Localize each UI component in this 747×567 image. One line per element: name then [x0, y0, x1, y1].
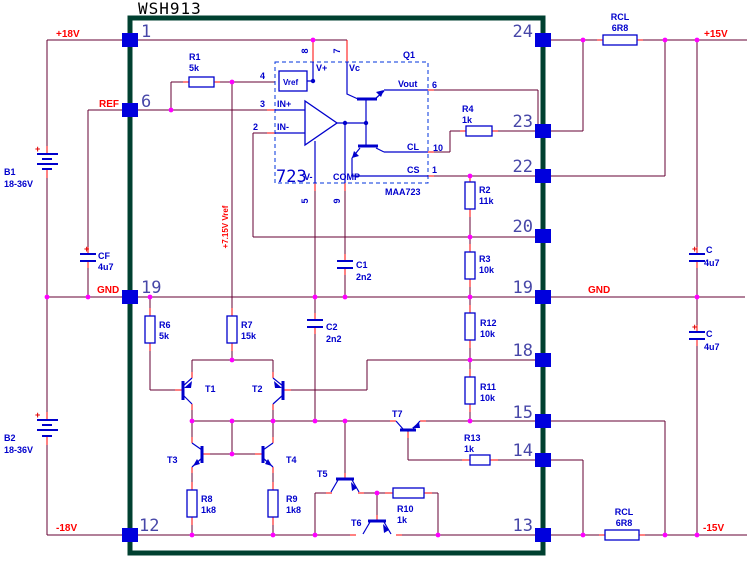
pin-23: 23 [513, 112, 533, 132]
ic-pin4: 4 [260, 71, 265, 81]
transistor-t3 [192, 443, 202, 467]
label-r8: R8 [201, 494, 213, 504]
resistor-r12 [465, 313, 475, 340]
label-r4: R4 [462, 104, 474, 114]
value-r12: 10k [480, 329, 496, 339]
value-r7: 15k [241, 331, 257, 341]
resistor-rcl-top [603, 35, 637, 45]
ic-pin7: 7 [332, 48, 342, 53]
pad-6 [122, 103, 138, 117]
ic-part-number: MAA723 [385, 187, 421, 197]
pad-15 [535, 414, 551, 428]
resistor-r3 [465, 252, 475, 279]
transistor-t5 [331, 479, 359, 492]
ic-pin6: 6 [432, 80, 437, 90]
pad-13 [535, 528, 551, 542]
label-t3: T3 [167, 455, 178, 465]
value-r10: 1k [397, 515, 408, 525]
pad-12 [122, 528, 138, 542]
ic-comp-label: COMP [333, 172, 360, 182]
resistor-r6 [145, 316, 155, 343]
battery-b2 [37, 420, 58, 436]
value-r1: 5k [189, 63, 200, 73]
transistor-t6 [363, 521, 391, 534]
battery-b1 [37, 154, 58, 169]
pin-20: 20 [513, 217, 533, 237]
label-r7: R7 [241, 320, 253, 330]
ic-pin3: 3 [260, 99, 265, 109]
value-r4: 1k [462, 115, 473, 125]
label-c2: C2 [326, 322, 338, 332]
label-r9: R9 [286, 494, 298, 504]
capacitor-cf [80, 254, 96, 261]
value-r8: 1k8 [201, 505, 216, 515]
label-r3: R3 [479, 254, 491, 264]
value-b2: 18-36V [4, 445, 33, 455]
value-rcl-bottom: 6R8 [616, 518, 633, 528]
rail-gnd-left: GND [97, 285, 119, 296]
transistor-t1 [183, 378, 192, 404]
resistor-r13 [470, 455, 490, 465]
plus-b1: + [35, 144, 40, 154]
ic-vc-label: Vc [349, 63, 360, 73]
value-r2: 11k [479, 196, 495, 206]
label-r1: R1 [189, 52, 201, 62]
resistor-r1 [189, 77, 214, 87]
label-r12: R12 [480, 318, 497, 328]
value-r9: 1k8 [286, 505, 301, 515]
resistor-rcl-bottom [605, 530, 639, 540]
plus-c-bottom: + [692, 322, 697, 332]
plus-c-top: + [692, 244, 697, 254]
label-r6: R6 [159, 320, 171, 330]
transistor-t7 [396, 421, 420, 430]
ic-vout-label: Vout [398, 79, 417, 89]
pad-22 [535, 169, 551, 183]
value-b1: 18-36V [4, 179, 33, 189]
q1-arrow [376, 90, 384, 97]
pin-19-right: 19 [513, 278, 533, 298]
plus-b2: + [35, 410, 40, 420]
resistor-r9 [268, 490, 278, 517]
vref-note: +7.15V Vref [221, 205, 230, 248]
opamp-triangle [305, 101, 337, 145]
value-c-bottom: 4u7 [704, 342, 720, 352]
ic-vplus-label: V+ [316, 63, 327, 73]
label-r2: R2 [479, 185, 491, 195]
pad-1 [122, 33, 138, 47]
pad-14 [535, 453, 551, 467]
pad-24 [535, 33, 551, 47]
ic-pin1: 1 [432, 165, 437, 175]
pin-24: 24 [513, 22, 533, 42]
pad-19-left [122, 290, 138, 304]
pin-19-left: 19 [141, 278, 161, 298]
rail-minus18v: -18V [56, 523, 77, 534]
ic-pin2: 2 [253, 122, 258, 132]
pin-14: 14 [513, 441, 533, 461]
resistors [145, 35, 639, 540]
pin-13: 13 [513, 516, 533, 536]
ic-cs-label: CS [407, 165, 420, 175]
pad-18 [535, 353, 551, 367]
pad-20 [535, 229, 551, 243]
ic-inplus-label: IN+ [277, 99, 291, 109]
label-c-top: C [706, 245, 713, 255]
pin-18: 18 [513, 341, 533, 361]
value-c2: 2n2 [326, 334, 342, 344]
schematic-canvas: WSH913 +18V REF GND -18V +15V GND -15V +… [0, 0, 747, 567]
capacitor-c2 [307, 320, 323, 327]
label-b1: B1 [4, 167, 16, 177]
label-t6: T6 [351, 518, 362, 528]
value-r6: 5k [159, 331, 170, 341]
value-cf: 4u7 [98, 262, 114, 272]
pad-19-right [535, 290, 551, 304]
q2-arrow [352, 151, 359, 158]
label-t2: T2 [252, 384, 263, 394]
ic-inminus-label: IN- [277, 122, 289, 132]
label-rcl-bottom: RCL [615, 507, 634, 517]
label-b2: B2 [4, 433, 16, 443]
rail-gnd-right: GND [588, 285, 610, 296]
ic-pin9: 9 [332, 198, 342, 203]
pin-22: 22 [513, 157, 533, 177]
transistors [183, 378, 420, 534]
label-cf: CF [98, 251, 110, 261]
ic-cl-label: CL [407, 142, 419, 152]
value-c-top: 4u7 [704, 258, 720, 268]
resistor-r11 [465, 377, 475, 404]
pin-15: 15 [513, 403, 533, 423]
pin-1: 1 [141, 22, 151, 42]
plus-cf: + [84, 244, 89, 254]
resistor-r2 [465, 182, 475, 209]
rail-minus15v: -15V [703, 523, 724, 534]
ic-pin10: 10 [433, 143, 443, 153]
resistor-r4 [466, 126, 492, 136]
label-t1: T1 [205, 384, 216, 394]
resistor-r10 [393, 488, 424, 498]
resistor-r8 [187, 490, 197, 517]
label-r10: R10 [397, 504, 414, 514]
value-r3: 10k [479, 265, 495, 275]
rail-ref: REF [99, 99, 119, 110]
pin-6: 6 [141, 92, 151, 112]
label-rcl-top: RCL [611, 12, 630, 22]
transistor-t2 [273, 378, 283, 404]
ic-pin8: 8 [300, 48, 310, 53]
label-t7: T7 [392, 409, 403, 419]
value-rcl-top: 6R8 [612, 23, 629, 33]
module-title: WSH913 [138, 0, 202, 18]
ic-723-big-label: 723 [276, 167, 307, 187]
ic-vminus-label: V- [304, 172, 313, 182]
capacitor-c-bottom [689, 332, 705, 339]
rail-plus15v: +15V [704, 29, 728, 40]
value-r13: 1k [464, 444, 475, 454]
ic-junction-1 [311, 79, 315, 83]
label-c1: C1 [356, 260, 368, 270]
capacitor-c-top [689, 254, 705, 261]
pin-12: 12 [139, 516, 159, 536]
transistor-t4 [263, 443, 273, 467]
value-r11: 10k [480, 393, 496, 403]
label-r11: R11 [480, 382, 496, 392]
label-t4: T4 [286, 455, 297, 465]
pad-23 [535, 124, 551, 138]
label-c-bottom: C [706, 329, 713, 339]
ic-q1-label: Q1 [403, 50, 415, 60]
resistor-r7 [227, 316, 237, 343]
ic-junction-2 [343, 121, 347, 125]
ic-vref-label: Vref [283, 78, 298, 87]
schematic-page: WSH913 +18V REF GND -18V +15V GND -15V +… [0, 0, 747, 567]
rail-plus18v: +18V [56, 29, 80, 40]
label-t5: T5 [317, 469, 328, 479]
value-c1: 2n2 [356, 272, 372, 282]
capacitor-c1 [337, 261, 353, 268]
label-r13: R13 [464, 433, 481, 443]
ic-junction-3 [364, 121, 368, 125]
ic-pin5: 5 [300, 198, 310, 203]
